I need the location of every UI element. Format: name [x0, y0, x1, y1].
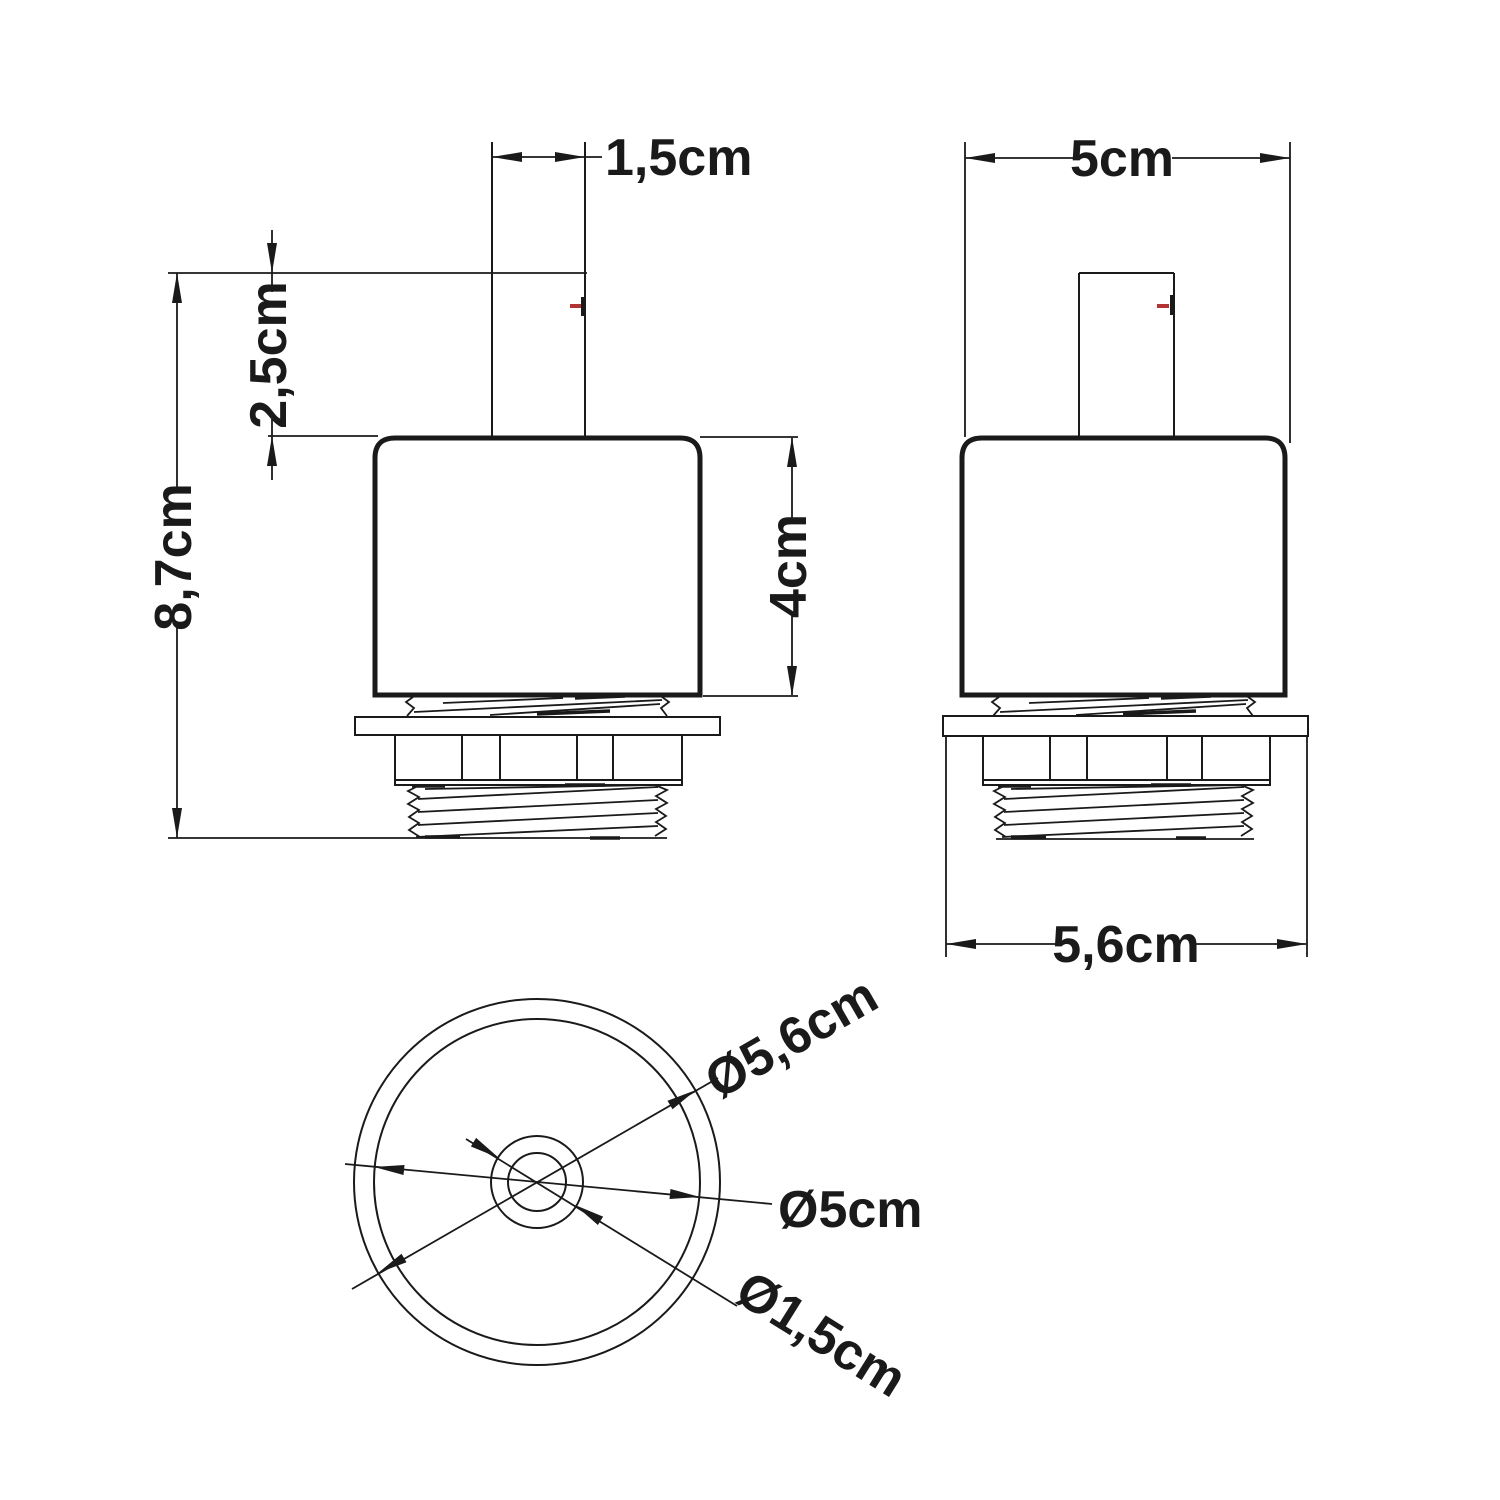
front-lower-thread [408, 785, 667, 838]
bottom-stem-diameter-label: Ø1,5cm [726, 1260, 916, 1409]
arrowhead [787, 437, 797, 467]
front-hex-nut [395, 735, 682, 785]
side-flange-width-label: 5,6cm [1052, 916, 1199, 974]
front-dim-body-height: 4cm [700, 437, 818, 696]
side-hex-nut [983, 736, 1270, 785]
arrowhead [172, 808, 182, 838]
front-dim-total-height: 8,7cm [145, 273, 203, 838]
bottom-view: Ø5,6cm Ø5cm Ø1,5cm [345, 966, 923, 1409]
front-flange [355, 717, 720, 735]
arrowhead [471, 1138, 499, 1158]
arrowhead [946, 939, 976, 949]
arrowhead [267, 436, 277, 466]
arrowhead [1260, 153, 1290, 163]
arrowhead [787, 666, 797, 696]
front-body [375, 438, 700, 695]
side-neck-thread [992, 696, 1255, 716]
side-body [962, 438, 1285, 695]
arrowhead [267, 243, 277, 273]
front-neck-thread [406, 696, 669, 716]
bottom-flange-diameter-label: Ø5,6cm [696, 966, 888, 1110]
red-marker-front [570, 304, 581, 308]
stem-edge-tick [581, 297, 586, 316]
technical-drawing-canvas: 1,5cm 2,5cm 8,7cm [0, 0, 1500, 1500]
front-stem-width-label: 1,5cm [605, 129, 752, 187]
bottom-body-diameter-label: Ø5cm [778, 1181, 923, 1239]
arrowhead [1277, 939, 1307, 949]
side-flange [943, 716, 1308, 736]
bottom-dim-flange-diameter: Ø5,6cm [352, 966, 887, 1289]
side-body-width-label: 5cm [1070, 130, 1174, 188]
bottom-dim-stem-diameter: Ø1,5cm [466, 1138, 916, 1409]
arrowhead [575, 1205, 603, 1225]
side-lower-thread [994, 785, 1254, 839]
front-total-height-label: 8,7cm [145, 483, 203, 630]
side-dim-body-width: 5cm [965, 130, 1290, 443]
arrowhead [965, 153, 995, 163]
arrowhead [555, 152, 585, 162]
side-stem [1079, 273, 1175, 437]
front-body-height-label: 4cm [760, 514, 818, 618]
drawing-svg: 1,5cm 2,5cm 8,7cm [0, 0, 1500, 1500]
bottom-dim-body-diameter: Ø5cm [345, 1164, 923, 1239]
front-dim-stem-height: 2,5cm [240, 230, 378, 480]
arrowhead [172, 273, 182, 303]
front-dim-stem-width: 1,5cm [492, 129, 752, 187]
front-stem [168, 142, 587, 437]
red-marker-side [1157, 304, 1169, 308]
stem-edge-tick [1170, 295, 1175, 315]
arrowhead [492, 152, 522, 162]
side-view: 5cm [943, 130, 1308, 974]
front-view: 1,5cm 2,5cm 8,7cm [145, 129, 818, 838]
front-stem-height-label: 2,5cm [240, 281, 298, 428]
